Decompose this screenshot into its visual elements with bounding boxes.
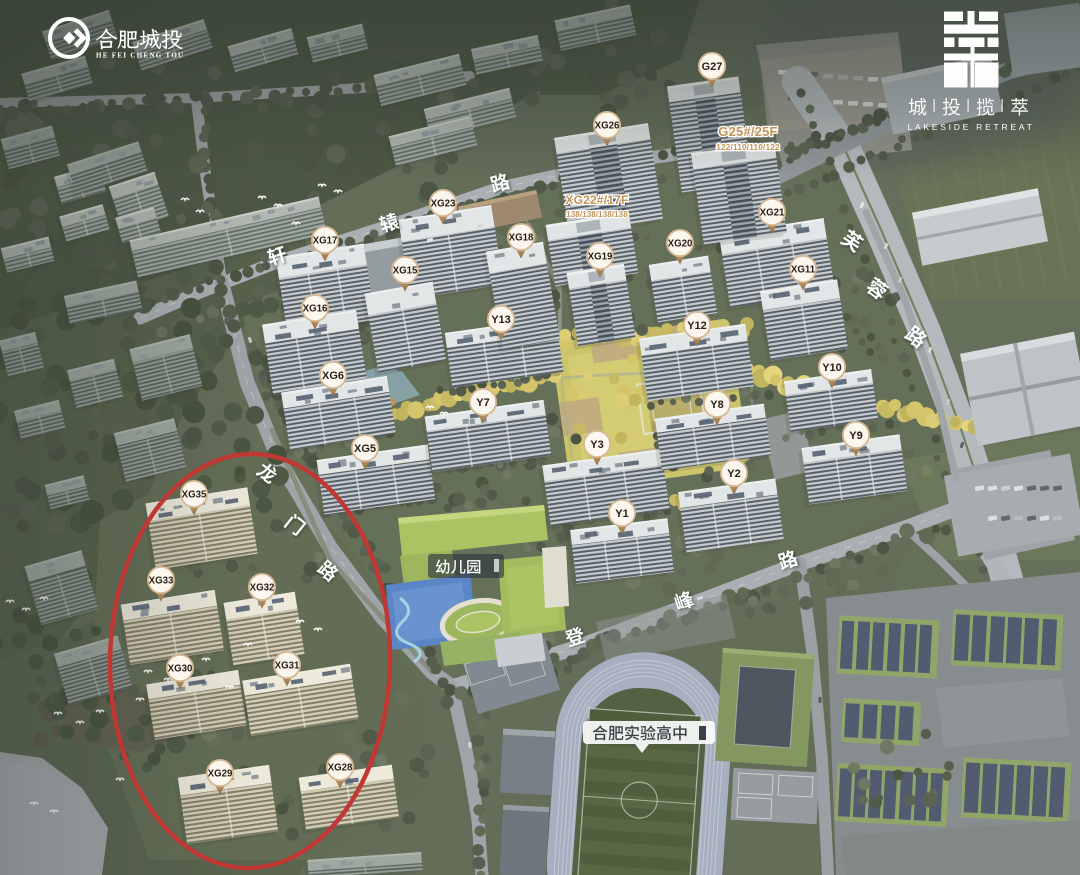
svg-text:Y9: Y9	[849, 430, 862, 442]
svg-text:XG23: XG23	[431, 199, 456, 210]
svg-text:G25#/25F: G25#/25F	[718, 124, 777, 139]
svg-text:Y7: Y7	[476, 397, 489, 409]
svg-text:Y12: Y12	[687, 320, 707, 332]
svg-text:Y1: Y1	[615, 508, 628, 520]
svg-text:XG29: XG29	[208, 769, 233, 780]
svg-text:XG5: XG5	[354, 443, 376, 455]
svg-text:XG31: XG31	[275, 661, 300, 672]
svg-text:Y13: Y13	[491, 314, 511, 326]
svg-text:Y3: Y3	[590, 439, 603, 451]
svg-text:XG16: XG16	[303, 304, 328, 315]
svg-text:LAKESIDE RETREAT: LAKESIDE RETREAT	[907, 122, 1034, 132]
svg-text:XG11: XG11	[791, 265, 816, 276]
svg-text:XG28: XG28	[328, 763, 353, 774]
svg-text:XG30: XG30	[168, 664, 193, 675]
svg-text:Y2: Y2	[727, 468, 740, 480]
svg-text:XG15: XG15	[393, 266, 418, 277]
svg-text:XG20: XG20	[668, 239, 693, 250]
svg-text:122/110/110/122: 122/110/110/122	[716, 143, 780, 152]
svg-text:XG21: XG21	[760, 208, 785, 219]
svg-text:G27: G27	[702, 61, 723, 73]
svg-text:XG32: XG32	[250, 583, 275, 594]
svg-text:XG26: XG26	[595, 121, 620, 132]
svg-text:XG33: XG33	[149, 576, 174, 587]
svg-text:XG35: XG35	[182, 490, 207, 501]
svg-text:XG19: XG19	[588, 252, 613, 263]
svg-text:HE FEI CHENG TOU: HE FEI CHENG TOU	[96, 52, 184, 60]
svg-text:XG22#/17F: XG22#/17F	[565, 193, 628, 207]
svg-text:XG18: XG18	[509, 233, 534, 244]
svg-text:XG6: XG6	[322, 370, 344, 382]
svg-text:Y8: Y8	[710, 399, 723, 411]
svg-text:XG17: XG17	[313, 236, 338, 247]
svg-text:138/138/138/138: 138/138/138/138	[566, 210, 628, 219]
svg-text:Y10: Y10	[822, 362, 842, 374]
